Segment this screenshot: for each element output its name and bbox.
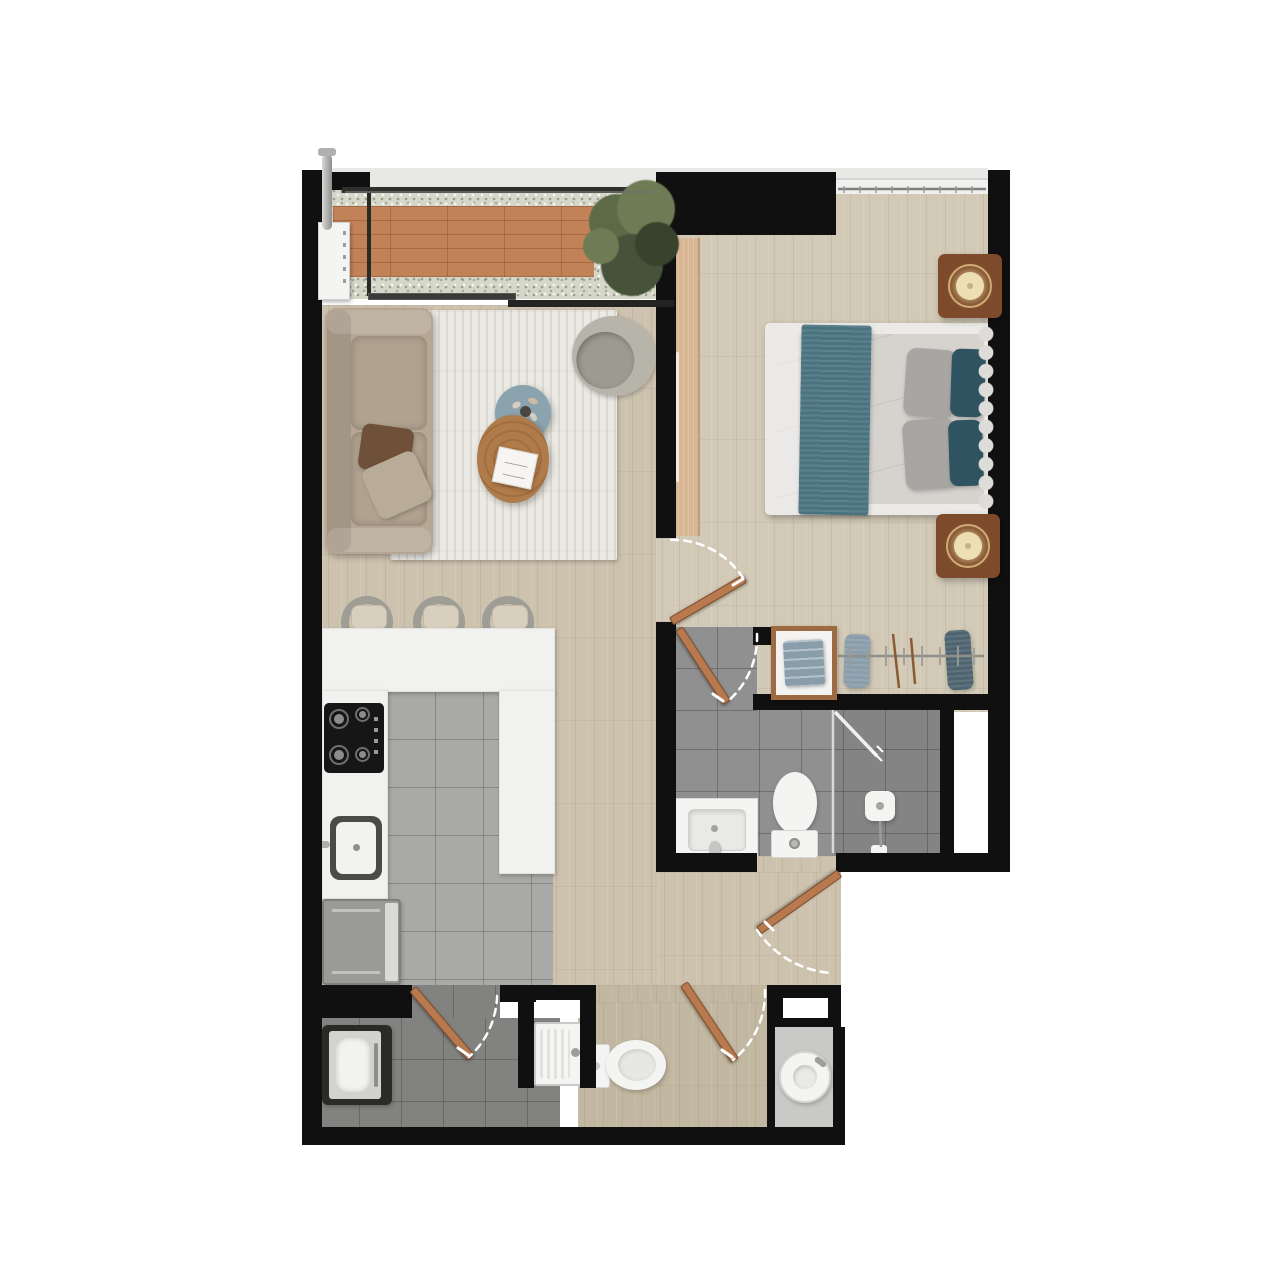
shower-door-handle [872, 746, 883, 761]
hall-bathroom-door-arc [757, 930, 833, 973]
overlay-layer [0, 0, 1280, 1280]
door-handle-marks [458, 579, 773, 1057]
shower-pipe [880, 821, 881, 847]
bathroom-door-arc [727, 634, 757, 702]
powder-door-arc [733, 990, 765, 1060]
floor-plan [0, 0, 1280, 1280]
laundry-door-arc [469, 996, 497, 1057]
bedroom-door-arc [668, 540, 743, 578]
shower-glass-door [835, 712, 877, 756]
